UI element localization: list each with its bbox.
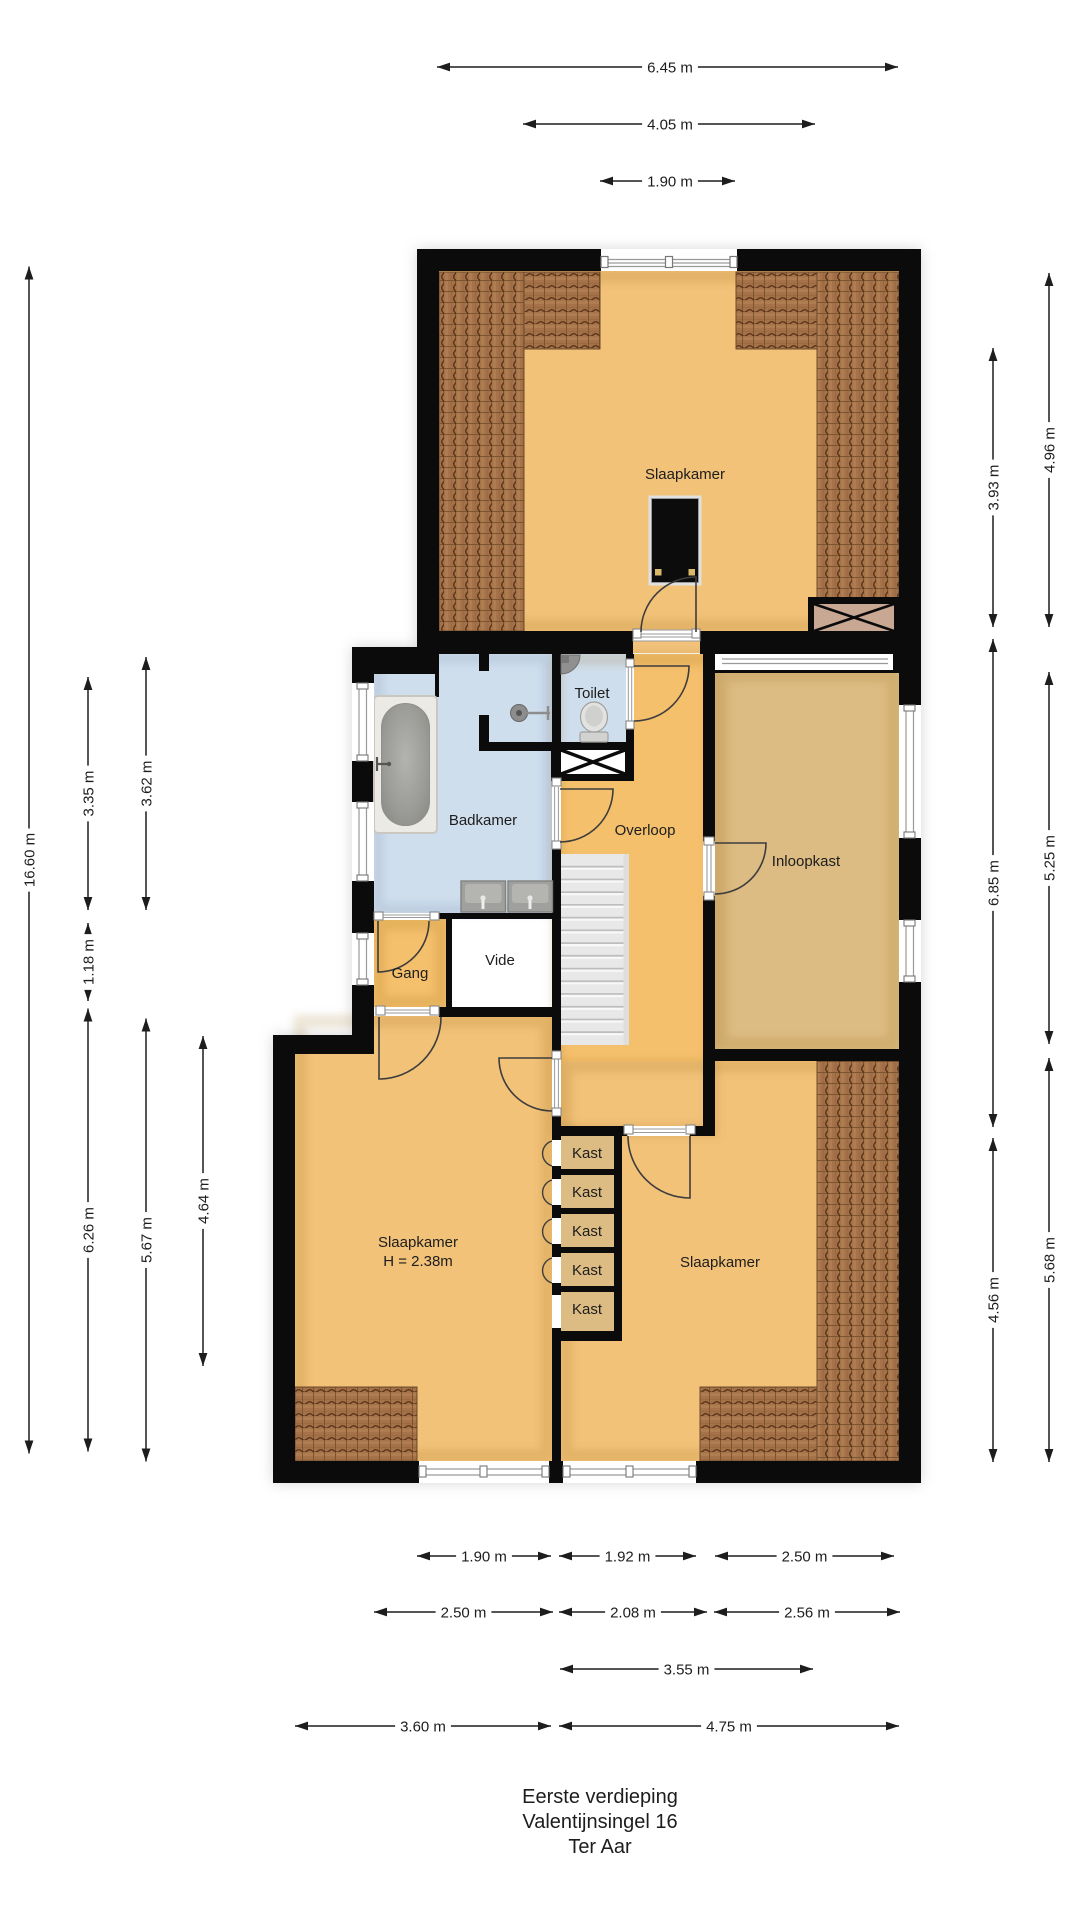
svg-text:6.45 m: 6.45 m bbox=[647, 60, 693, 77]
svg-text:2.56 m: 2.56 m bbox=[784, 1605, 830, 1622]
svg-text:2.08 m: 2.08 m bbox=[610, 1605, 656, 1622]
svg-text:Slaapkamer: Slaapkamer bbox=[680, 1254, 760, 1271]
svg-text:4.96 m: 4.96 m bbox=[1042, 427, 1059, 473]
svg-text:Ter Aar: Ter Aar bbox=[568, 1836, 632, 1858]
svg-text:4.05 m: 4.05 m bbox=[647, 117, 693, 134]
svg-text:1.90 m: 1.90 m bbox=[647, 174, 693, 191]
svg-text:3.62 m: 3.62 m bbox=[139, 761, 156, 807]
svg-text:1.90 m: 1.90 m bbox=[461, 1549, 507, 1566]
svg-text:3.55 m: 3.55 m bbox=[664, 1662, 710, 1679]
svg-text:2.50 m: 2.50 m bbox=[782, 1549, 828, 1566]
svg-text:Eerste verdieping: Eerste verdieping bbox=[522, 1786, 678, 1808]
svg-text:5.25 m: 5.25 m bbox=[1042, 835, 1059, 881]
svg-text:Slaapkamer: Slaapkamer bbox=[378, 1234, 458, 1251]
svg-text:Valentijnsingel 16: Valentijnsingel 16 bbox=[522, 1811, 677, 1833]
svg-text:Slaapkamer: Slaapkamer bbox=[645, 466, 725, 483]
svg-text:Kast: Kast bbox=[572, 1262, 603, 1279]
svg-text:16.60 m: 16.60 m bbox=[22, 833, 39, 887]
svg-text:Kast: Kast bbox=[572, 1301, 603, 1318]
svg-text:4.75 m: 4.75 m bbox=[706, 1719, 752, 1736]
svg-text:4.64 m: 4.64 m bbox=[196, 1178, 213, 1224]
svg-text:Badkamer: Badkamer bbox=[449, 812, 517, 829]
svg-text:Kast: Kast bbox=[572, 1184, 603, 1201]
svg-text:H = 2.38m: H = 2.38m bbox=[383, 1253, 453, 1270]
svg-text:6.85 m: 6.85 m bbox=[986, 860, 1003, 906]
svg-text:Inloopkast: Inloopkast bbox=[772, 853, 841, 870]
svg-text:Overloop: Overloop bbox=[615, 822, 676, 839]
svg-text:2.50 m: 2.50 m bbox=[441, 1605, 487, 1622]
svg-text:Kast: Kast bbox=[572, 1145, 603, 1162]
svg-text:3.60 m: 3.60 m bbox=[400, 1719, 446, 1736]
svg-text:4.56 m: 4.56 m bbox=[986, 1277, 1003, 1323]
svg-text:Gang: Gang bbox=[392, 965, 429, 982]
svg-text:Kast: Kast bbox=[572, 1223, 603, 1240]
svg-text:3.93 m: 3.93 m bbox=[986, 465, 1003, 511]
svg-text:5.67 m: 5.67 m bbox=[139, 1217, 156, 1263]
svg-text:3.35 m: 3.35 m bbox=[81, 771, 98, 817]
svg-text:1.18 m: 1.18 m bbox=[81, 939, 98, 985]
svg-text:Toilet: Toilet bbox=[574, 685, 610, 702]
svg-text:1.92 m: 1.92 m bbox=[605, 1549, 651, 1566]
svg-text:Vide: Vide bbox=[485, 952, 515, 969]
svg-text:6.26 m: 6.26 m bbox=[81, 1207, 98, 1253]
svg-text:5.68 m: 5.68 m bbox=[1042, 1237, 1059, 1283]
